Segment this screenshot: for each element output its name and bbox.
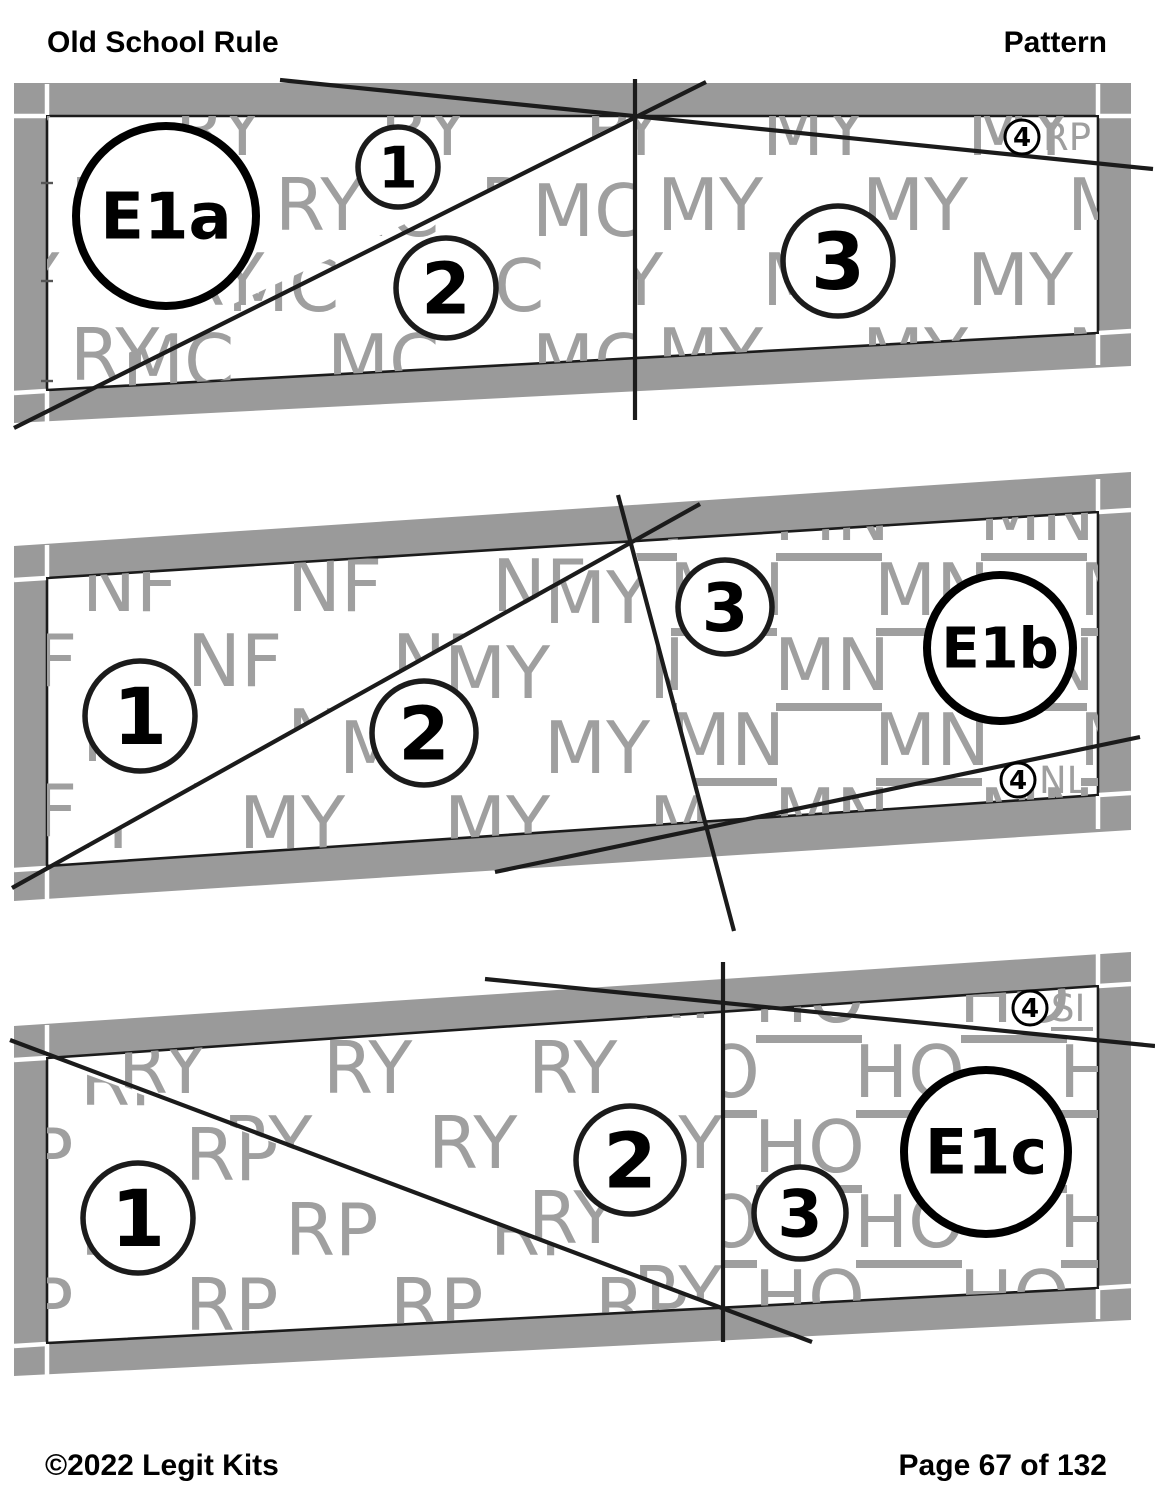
section-number: 3 — [702, 569, 749, 647]
section-number: 2 — [398, 692, 450, 778]
section-number: 2 — [421, 248, 470, 331]
section-number: 1 — [113, 673, 167, 763]
corner-mark — [14, 1344, 46, 1346]
watermark-underline — [856, 1260, 962, 1268]
fabric-code-watermark: NF — [187, 619, 282, 703]
watermark-underline — [776, 553, 882, 561]
section-number: 1 — [111, 1175, 165, 1265]
section-4-code: NL — [1039, 759, 1088, 802]
piece-label: E1a — [100, 180, 231, 254]
fabric-code-watermark: MN — [774, 623, 890, 707]
fabric-code-watermark: NF — [0, 469, 77, 553]
piece-e1b: NFNFNFNFNFNFNFNFNFNFNFNFNFNFNFNFNFNFNFNF… — [0, 469, 1155, 931]
fabric-code-watermark: RY — [1143, 1176, 1155, 1260]
piece-e1a: RYRYRYRYRYRYRYRYRYRYRYRYRYRYRYRYRYRYRYRY… — [0, 79, 1155, 428]
section-4-code: SI — [1051, 987, 1085, 1030]
corner-mark — [14, 391, 46, 393]
piece-e1c: RPRPRPRPRPRPRPRPRPRPRPRPRPRPRPRPRPRPRPRP… — [0, 951, 1155, 1376]
pattern-canvas: RYRYRYRYRYRYRYRYRYRYRYRYRYRYRYRYRYRYRYRY… — [0, 0, 1155, 1508]
fabric-code-watermark: MC — [532, 169, 644, 253]
pattern-page: Old School Rule Pattern ©2022 Legit Kits… — [0, 0, 1155, 1508]
section-number: 3 — [811, 218, 865, 308]
watermark-underline — [961, 1335, 1067, 1343]
section-4-number: 4 — [1009, 766, 1027, 796]
fabric-code-watermark: RY — [1143, 1026, 1155, 1110]
section-number: 1 — [378, 136, 418, 202]
fabric-code-watermark: RY — [323, 1026, 413, 1110]
watermark-underline — [981, 853, 1087, 861]
section-number: 2 — [603, 1118, 657, 1207]
section-4-code-underline — [1051, 1027, 1093, 1031]
watermark-underline — [776, 853, 882, 861]
watermark-underline — [756, 1035, 862, 1043]
section-4-number: 4 — [1021, 994, 1039, 1024]
fabric-code-watermark: RY — [528, 1026, 618, 1110]
corner-mark — [14, 1058, 46, 1060]
corner-mark — [1099, 510, 1131, 512]
fabric-code-watermark: RY — [275, 163, 365, 247]
section-4-number: 4 — [1013, 123, 1031, 153]
fabric-code-watermark: RP — [285, 1188, 378, 1272]
watermark-underline — [981, 553, 1087, 561]
fabric-code-watermark: MY — [967, 238, 1074, 322]
corner-mark — [1099, 984, 1131, 986]
corner-mark — [14, 578, 46, 580]
watermark-underline — [776, 703, 882, 711]
fabric-code-watermark: MY — [544, 706, 651, 790]
piece-label: E1b — [941, 617, 1058, 682]
fabric-code-watermark: RY — [428, 1101, 518, 1185]
corner-mark — [1099, 1286, 1131, 1288]
section-4-code: RP — [1043, 116, 1091, 159]
corner-mark — [1099, 331, 1131, 333]
fabric-code-watermark: MC — [1147, 169, 1155, 253]
fabric-code-watermark: MC — [1147, 319, 1155, 403]
section-number: 3 — [777, 1177, 822, 1252]
fabric-code-watermark: MY — [657, 163, 764, 247]
piece-label: E1c — [925, 1116, 1047, 1189]
corner-mark — [1099, 793, 1131, 795]
